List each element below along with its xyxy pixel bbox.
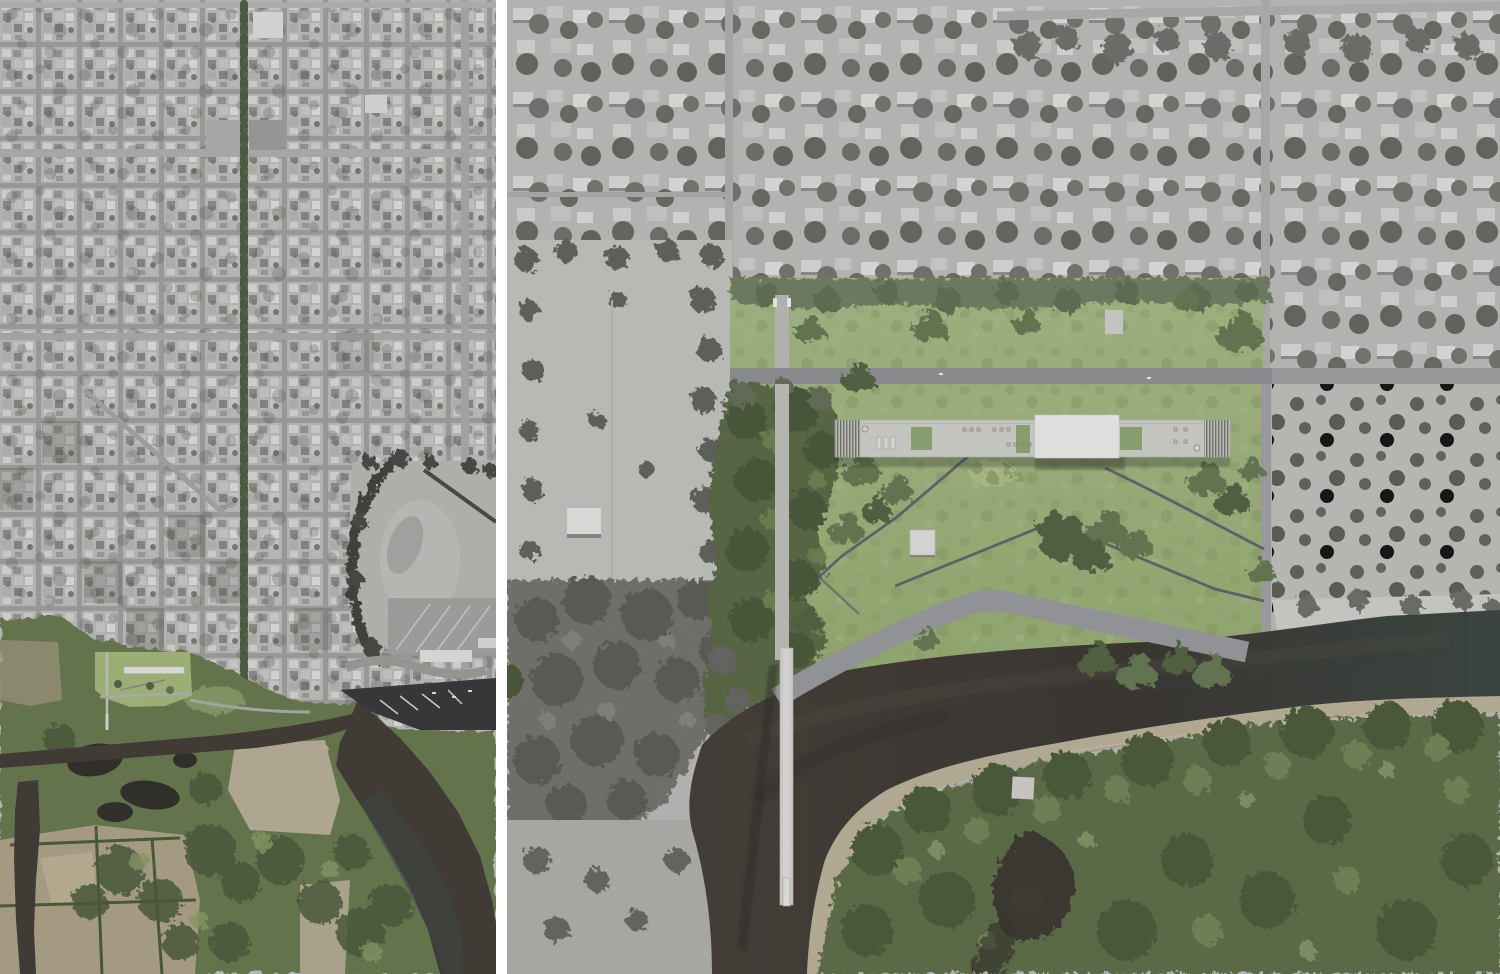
film-grain xyxy=(0,0,496,974)
film-grain xyxy=(507,0,1500,974)
overview-aerial-panel xyxy=(0,0,496,974)
site-plan-aerial-panel xyxy=(507,0,1500,974)
aerial-montage xyxy=(0,0,1500,974)
